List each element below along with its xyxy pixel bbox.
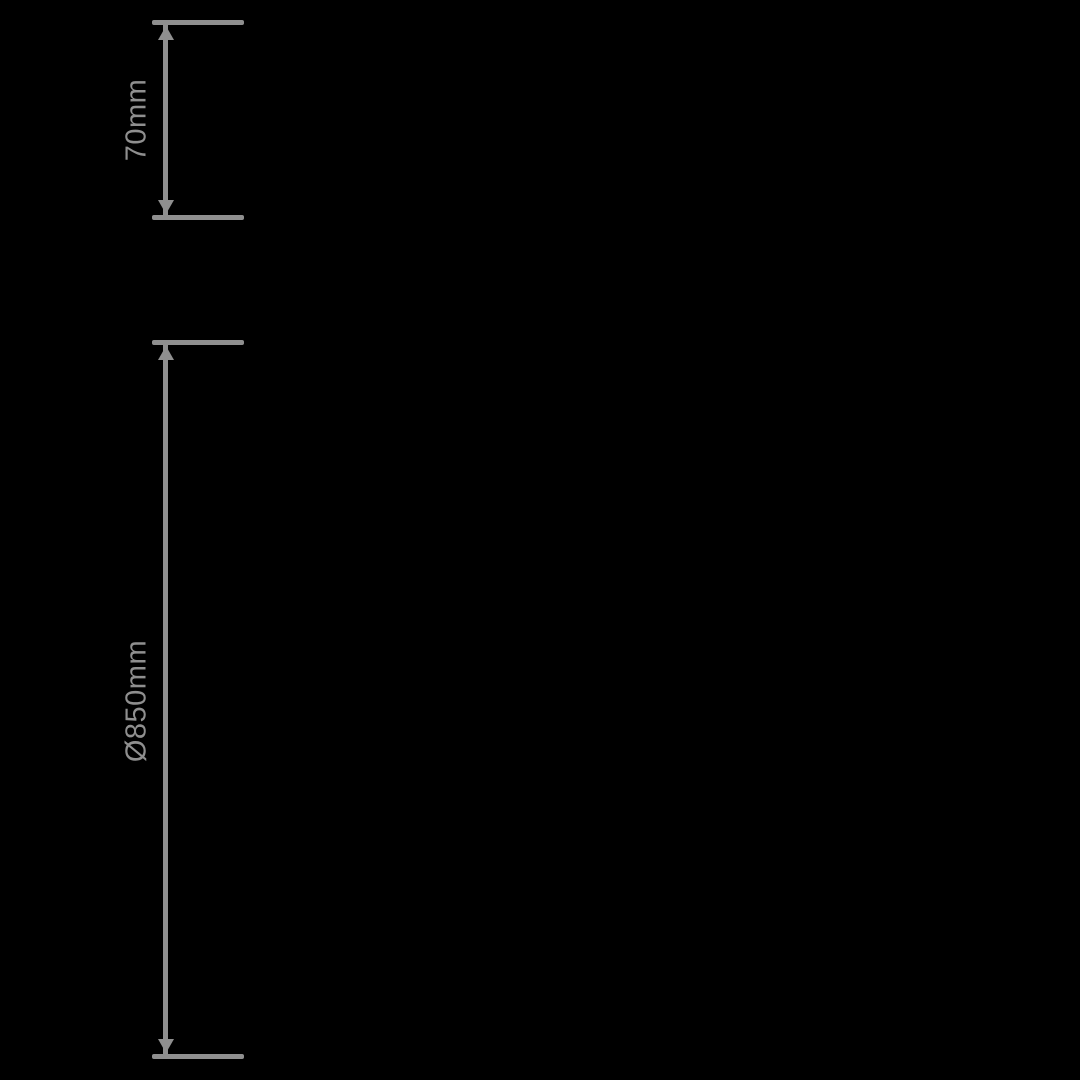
dimension-label: Ø850mm [121, 640, 154, 762]
arrow-down-icon [158, 1039, 174, 1053]
dimension-label: 70mm [121, 79, 154, 162]
arrow-down-icon [158, 200, 174, 214]
extension-line-bottom [152, 1054, 244, 1059]
extension-line-bottom [152, 215, 244, 220]
dimension-line [163, 25, 168, 220]
dimension-diagram: 70mm Ø850mm [0, 0, 1080, 1080]
arrow-up-icon [158, 346, 174, 360]
dimension-line [163, 345, 168, 1054]
arrow-up-icon [158, 26, 174, 40]
